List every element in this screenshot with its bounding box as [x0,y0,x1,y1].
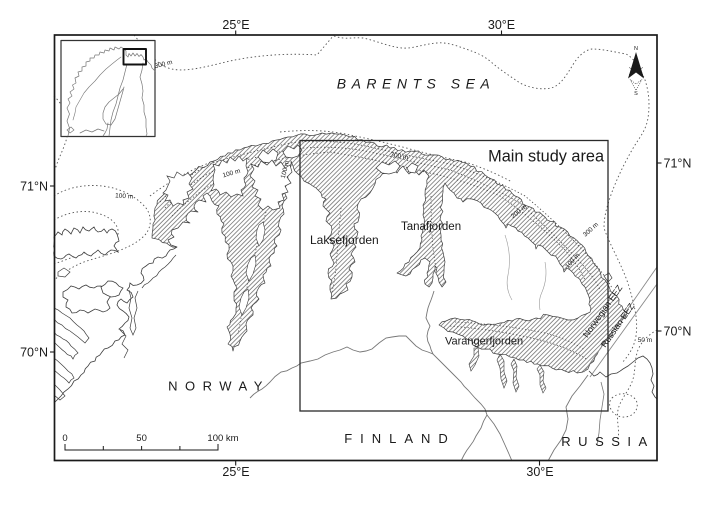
svg-text:0: 0 [62,433,67,444]
svg-text:Tanafjorden: Tanafjorden [401,221,461,233]
svg-text:Varangerfjorden: Varangerfjorden [445,336,523,348]
svg-text:N: N [634,46,638,52]
svg-text:NORWAY: NORWAY [168,379,270,394]
svg-text:Laksefjorden: Laksefjorden [310,233,379,247]
svg-text:70°N: 70°N [20,346,48,360]
svg-text:100 m: 100 m [115,192,134,200]
svg-text:BARENTS SEA: BARENTS SEA [337,76,496,92]
svg-text:RUSSIA: RUSSIA [561,434,654,449]
svg-text:50 m: 50 m [638,337,652,344]
svg-text:70°N: 70°N [664,325,692,339]
svg-text:71°N: 71°N [20,180,48,194]
svg-text:S: S [634,91,638,97]
svg-text:50: 50 [136,433,147,444]
svg-text:Main study area: Main study area [488,148,605,166]
svg-text:25°E: 25°E [222,465,249,479]
svg-text:100 km: 100 km [207,433,238,444]
svg-text:71°N: 71°N [664,157,692,171]
svg-text:25°E: 25°E [222,18,249,32]
svg-text:FINLAND: FINLAND [344,431,456,446]
svg-text:30°E: 30°E [488,18,515,32]
svg-text:30°E: 30°E [526,465,553,479]
